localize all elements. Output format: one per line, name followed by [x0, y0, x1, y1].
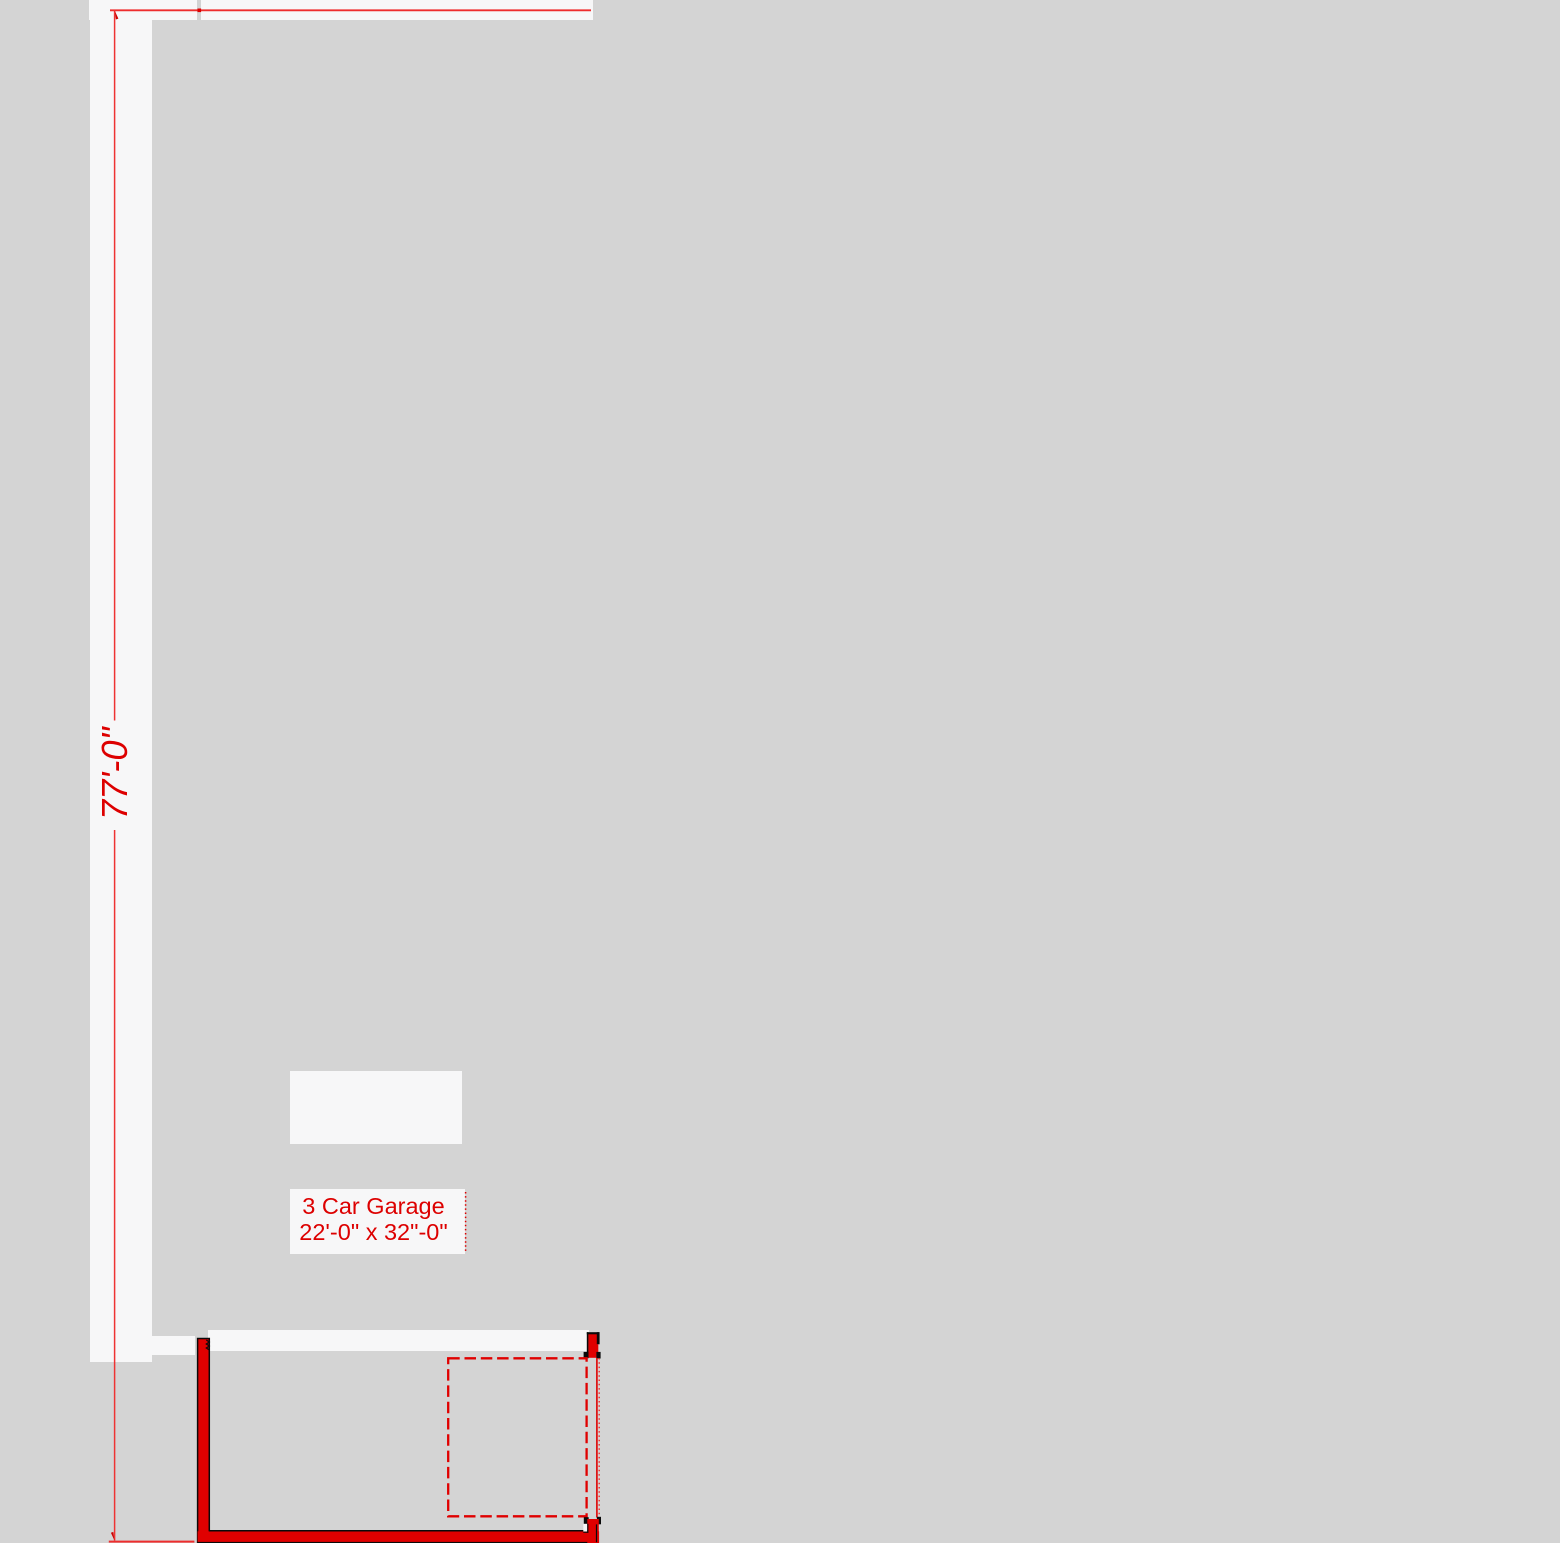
svg-text:77'-0": 77'-0"	[94, 725, 135, 820]
